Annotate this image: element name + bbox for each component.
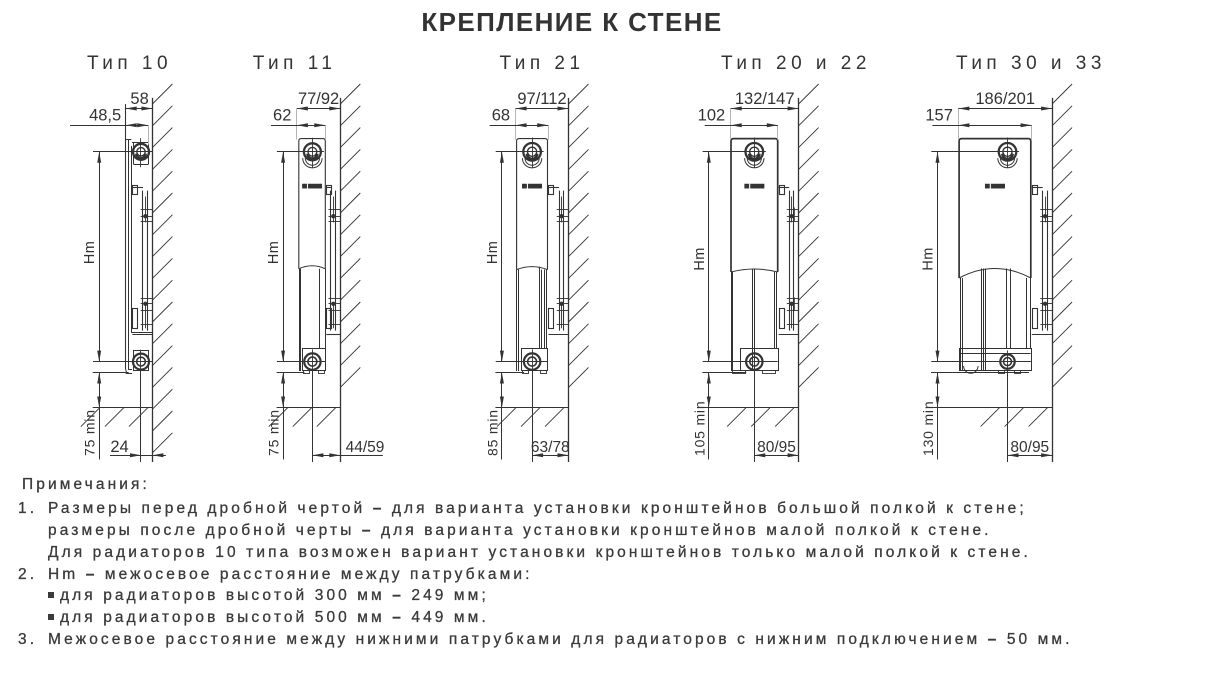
svg-text:48,5: 48,5 [89,107,121,125]
svg-text:Hm: Hm [921,247,937,270]
svg-text:Тип 11: Тип 11 [253,53,337,74]
svg-text:186/201: 186/201 [975,90,1035,108]
svg-text:85 min: 85 min [484,409,500,456]
svg-text:97/112: 97/112 [517,90,566,108]
svg-text:Hm: Hm [82,241,98,264]
svg-text:62: 62 [273,107,291,125]
svg-text:75 min: 75 min [266,409,282,456]
svg-text:24: 24 [110,438,128,456]
svg-text:Тип 21: Тип 21 [499,53,584,74]
svg-text:Тип 20 и 22: Тип 20 и 22 [721,53,871,74]
svg-text:44/59: 44/59 [346,439,385,456]
svg-text:77/92: 77/92 [298,90,339,108]
svg-text:102: 102 [698,107,726,125]
svg-text:68: 68 [492,107,510,125]
svg-text:Hm: Hm [266,241,282,264]
svg-text:75 min: 75 min [82,409,98,456]
svg-text:Hm: Hm [692,247,708,270]
svg-text:132/147: 132/147 [735,90,795,108]
svg-text:58: 58 [130,90,148,108]
svg-text:105 min: 105 min [691,401,707,456]
svg-text:63/78: 63/78 [531,439,570,456]
svg-text:157: 157 [925,107,953,125]
svg-text:80/95: 80/95 [757,439,796,456]
svg-text:130 min: 130 min [920,401,936,456]
svg-text:80/95: 80/95 [1010,439,1049,456]
svg-text:Тип 30 и 33: Тип 30 и 33 [956,53,1106,74]
svg-text:КРЕПЛЕНИЕ К СТЕНЕ: КРЕПЛЕНИЕ К СТЕНЕ [421,7,722,37]
svg-text:Тип 10: Тип 10 [87,53,172,74]
svg-text:Hm: Hm [485,241,501,264]
